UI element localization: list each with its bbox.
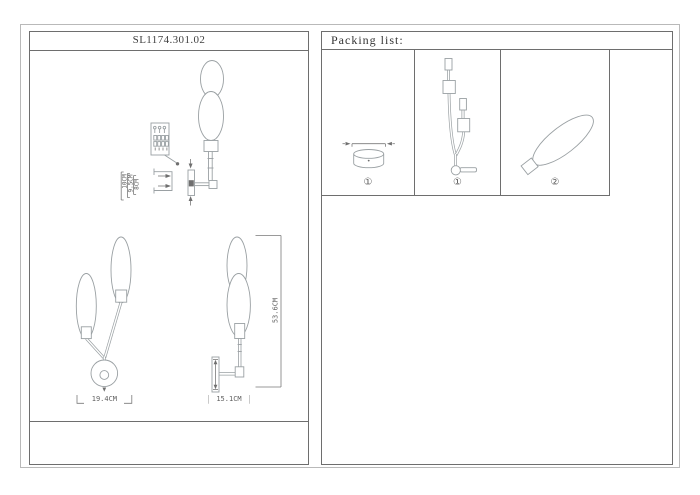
dim-label-8cm: 8CM <box>133 170 142 200</box>
left-panel-drawings: SL1174.301.02 <box>29 31 309 465</box>
packing-item-canopy: ① <box>322 50 415 195</box>
dim-label-width-front: 19.4CM <box>84 395 124 404</box>
item-number-badge: ① <box>415 178 500 188</box>
spec-sheet-page: SL1174.301.02 <box>0 0 700 495</box>
left-panel-footer <box>30 421 308 464</box>
packing-item-frame: ① <box>415 50 501 195</box>
dim-label-depth-side: 15.1CM <box>209 395 249 404</box>
packing-list-grid: ① <box>322 50 610 196</box>
packing-list-header: Packing list: <box>322 32 672 50</box>
dim-label-total-height: 53.6CM <box>271 295 280 325</box>
packing-item-shade: ② <box>501 50 609 195</box>
item-number-badge: ② <box>501 178 609 188</box>
lamp-frame-drawing <box>415 50 500 194</box>
drawing-area: 10CM 9.5CM 8CM 19.4CM 15.1CM 53.6CM <box>30 32 308 464</box>
outer-frame: SL1174.301.02 <box>20 24 680 468</box>
technical-drawings <box>30 32 310 466</box>
item-number-badge: ① <box>322 178 414 188</box>
wall-lamp-side-view-drawing <box>209 236 281 404</box>
packing-list-title: Packing list: <box>331 33 404 47</box>
packing-list-panel: Packing list: ① <box>321 31 673 465</box>
glass-shade-drawing <box>501 50 608 194</box>
wall-lamp-front-view-drawing <box>76 237 132 403</box>
canopy-base-drawing <box>322 50 414 194</box>
